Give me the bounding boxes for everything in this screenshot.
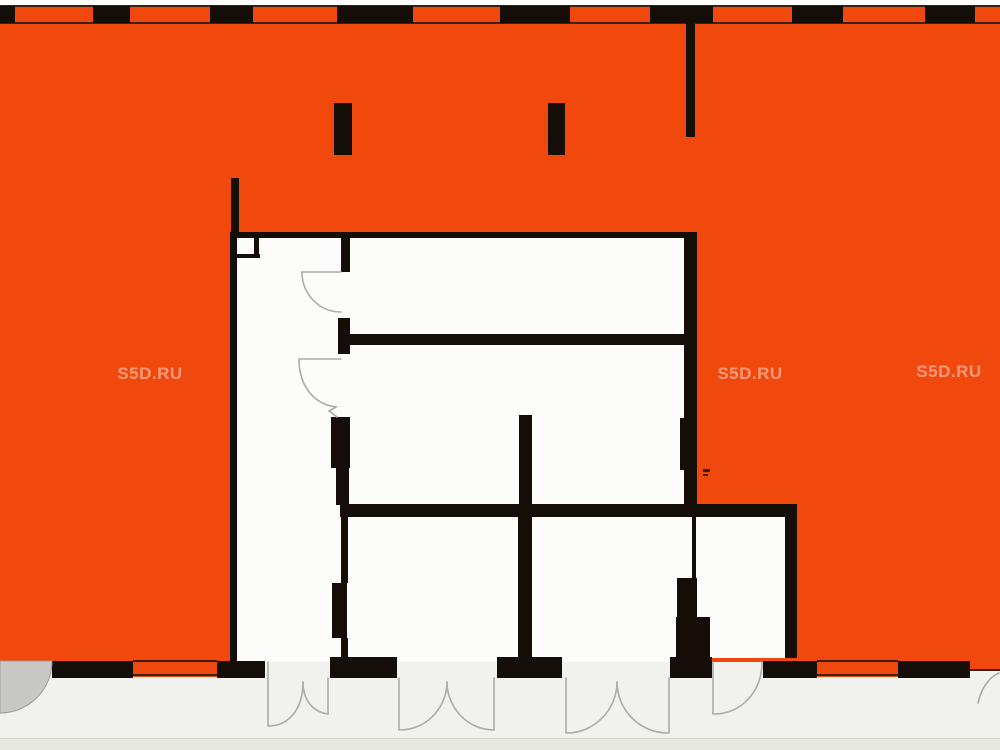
interior-wall-horizontal-1 (347, 334, 687, 345)
top-wall-pier (650, 6, 713, 23)
room-right-wall (785, 505, 797, 658)
wall-line (968, 669, 1000, 671)
room-divider-base (676, 617, 710, 658)
window-sill-line (817, 660, 898, 662)
window-sill-line (817, 674, 898, 676)
floorplan-svg (0, 0, 1000, 750)
room-divider-wall (692, 517, 696, 578)
window-sill-line (133, 660, 217, 662)
bottom-wall-segment (52, 661, 133, 678)
top-wall-pier (210, 6, 253, 23)
small-plan-mark (703, 474, 708, 476)
middle-wall-lower (518, 517, 532, 658)
hanging-wall (686, 22, 695, 137)
bottom-wall-segment (330, 657, 397, 678)
corridor-wall-lower (341, 638, 348, 658)
window-sill-line (133, 674, 217, 676)
apartment-right-wall (684, 232, 697, 517)
column (334, 103, 352, 155)
top-wall-pier (93, 6, 130, 23)
floorplan-screenshot: S5D.RU S5D.RU S5D.RU (0, 0, 1000, 750)
top-wall-pier (500, 6, 570, 23)
bottom-wall-segment (670, 657, 712, 678)
apartment-area (233, 232, 690, 662)
bottom-edge-band (0, 738, 1000, 750)
bottom-wall-segment (217, 661, 265, 678)
top-wall-pier (0, 6, 15, 23)
orange-right-edge (970, 662, 1000, 669)
corridor-wall-lower (341, 517, 348, 583)
bottom-wall-segment (898, 661, 970, 678)
top-wall-pier (925, 6, 975, 23)
corridor-wall (341, 238, 350, 272)
small-plan-mark (703, 469, 710, 472)
left-wall-extension (231, 178, 239, 234)
bottom-wall-segment (497, 657, 562, 678)
corner-shaft-wall (254, 236, 259, 258)
corridor-wall-pier (331, 417, 350, 468)
apartment-left-wall (230, 232, 237, 662)
corridor-wall-pier (332, 583, 347, 638)
interior-wall-horizontal-2 (340, 504, 797, 517)
bottom-wall-segment (763, 661, 817, 678)
right-wall-pier (680, 418, 697, 470)
bottom-edge-line (0, 738, 1000, 739)
apartment-top-wall (233, 232, 694, 238)
middle-wall-upper (519, 415, 532, 505)
top-wall-pier (337, 6, 413, 23)
column (548, 103, 565, 155)
top-wall-pier (792, 6, 843, 23)
corridor-wall (336, 467, 349, 505)
